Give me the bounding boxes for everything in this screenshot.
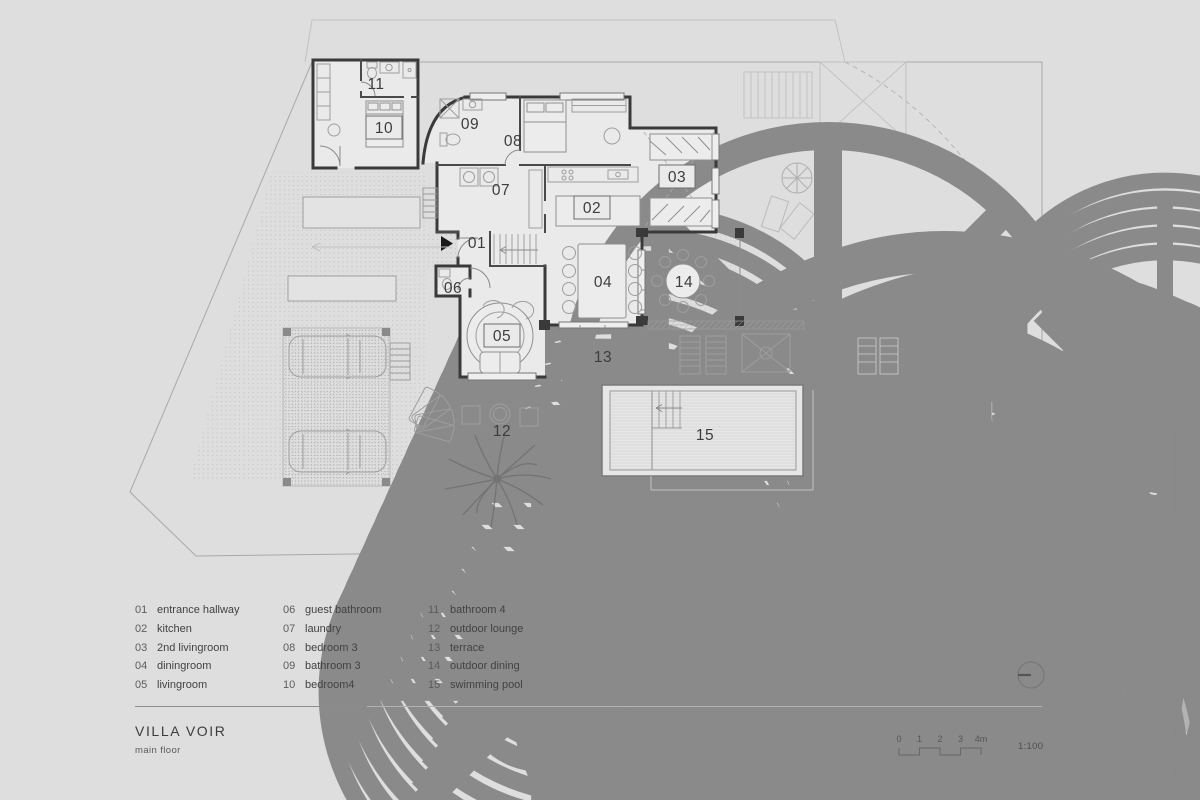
legend-item-label: outdoor dining (450, 660, 520, 672)
legend-item-label: terrace (450, 642, 484, 654)
legend-item-label: laundry (305, 623, 341, 635)
room-label: 15 (696, 427, 714, 444)
legend-item-label: diningroom (157, 660, 211, 672)
legend-item: 10bedroom4 (283, 676, 428, 695)
room-label: 04 (594, 274, 612, 291)
exterior-stair (744, 72, 812, 118)
legend-item-label: livingroom (157, 679, 207, 691)
sheet-title: VILLA VOIR (135, 723, 226, 739)
sheet-subtitle: main floor (135, 745, 226, 756)
room-label: 02 (583, 200, 601, 217)
legend-item: 07laundry (283, 620, 428, 639)
legend-item: 02kitchen (135, 620, 283, 639)
scale-tick-label: 2 (937, 734, 942, 744)
legend-item-number: 03 (135, 639, 157, 658)
legend-column: 01entrance hallway02kitchen032nd livingr… (135, 601, 283, 695)
legend-item-number: 07 (283, 620, 305, 639)
legend-item-number: 15 (428, 676, 450, 695)
legend-column: 11bathroom 412outdoor lounge13terrace14o… (428, 601, 523, 695)
legend-item-number: 09 (283, 657, 305, 676)
legend-item: 14outdoor dining (428, 657, 523, 676)
room-label: 03 (668, 169, 686, 186)
legend-item-number: 12 (428, 620, 450, 639)
legend-item-number: 01 (135, 601, 157, 620)
scale-tick-labels: 01234m (896, 734, 987, 744)
legend-item-number: 05 (135, 676, 157, 695)
legend-column: 06guest bathroom07laundry08bedroom 309ba… (283, 601, 428, 695)
legend-item-label: outdoor lounge (450, 623, 523, 635)
legend-item: 11bathroom 4 (428, 601, 523, 620)
room-label: 01 (468, 235, 486, 252)
legend-item-label: 2nd livingroom (157, 642, 229, 654)
room-label: 11 (367, 76, 384, 93)
drawing-sheet: { "colors": { "background": "#dedede", "… (0, 0, 1200, 800)
north-indicator-icon (1015, 659, 1047, 691)
legend-item-number: 11 (428, 601, 450, 620)
legend-item-label: entrance hallway (157, 604, 240, 616)
legend-item: 032nd livingroom (135, 639, 283, 658)
room-label: 06 (444, 280, 462, 297)
scale-tick-label: 4m (975, 734, 988, 744)
room-label: 13 (594, 349, 612, 366)
legend-item-label: bathroom 4 (450, 604, 506, 616)
terrace-planter (648, 321, 804, 329)
legend-item-label: guest bathroom (305, 604, 381, 616)
legend-item-number: 08 (283, 639, 305, 658)
room-label: 09 (461, 116, 479, 133)
legend-item: 06guest bathroom (283, 601, 428, 620)
legend-item-number: 10 (283, 676, 305, 695)
room-label: 14 (675, 274, 693, 291)
garden-furniture-faint (761, 163, 813, 239)
legend-item-label: kitchen (157, 623, 192, 635)
legend: 01entrance hallway02kitchen032nd livingr… (135, 601, 523, 695)
room-label: 05 (493, 328, 511, 345)
legend-item: 01entrance hallway (135, 601, 283, 620)
title-block: VILLA VOIR main floor (135, 723, 226, 756)
legend-item-label: bathroom 3 (305, 660, 361, 672)
legend-item-number: 02 (135, 620, 157, 639)
legend-item: 04diningroom (135, 657, 283, 676)
scale-tick-label: 3 (958, 734, 963, 744)
scale-ratio: 1:100 (1018, 741, 1043, 752)
room-label: 07 (492, 182, 510, 199)
legend-item-label: swimming pool (450, 679, 523, 691)
scale-tick-label: 0 (896, 734, 901, 744)
legend-item-number: 14 (428, 657, 450, 676)
legend-item: 15swimming pool (428, 676, 523, 695)
legend-item: 08bedroom 3 (283, 639, 428, 658)
room-label: 10 (375, 120, 393, 137)
legend-item-number: 04 (135, 657, 157, 676)
legend-item-number: 06 (283, 601, 305, 620)
legend-item-label: bedroom4 (305, 679, 355, 691)
scale-tick-label: 1 (917, 734, 922, 744)
legend-item-label: bedroom 3 (305, 642, 358, 654)
legend-item: 12outdoor lounge (428, 620, 523, 639)
room-label: 08 (504, 133, 522, 150)
legend-item: 13terrace (428, 639, 523, 658)
room-label: 12 (493, 423, 511, 440)
legend-item: 09bathroom 3 (283, 657, 428, 676)
legend-item-number: 13 (428, 639, 450, 658)
legend-item: 05livingroom (135, 676, 283, 695)
